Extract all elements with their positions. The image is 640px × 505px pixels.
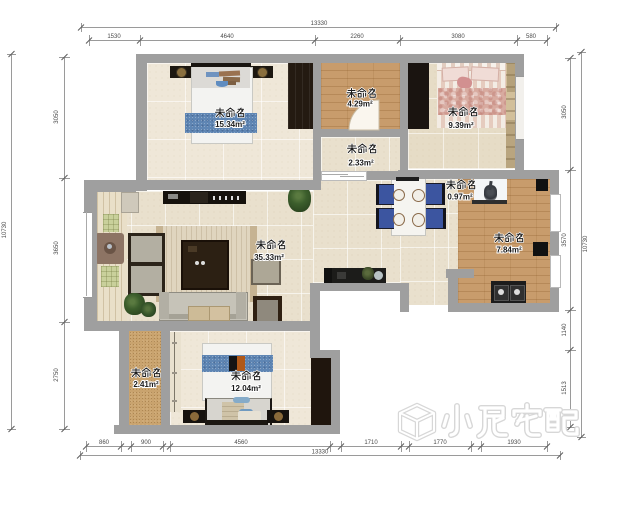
svg-text:35.33m²: 35.33m² [254,253,284,262]
svg-text:12.04m²: 12.04m² [231,384,261,393]
svg-text:9.39m²: 9.39m² [448,121,474,130]
svg-text:2.41m²: 2.41m² [133,380,159,389]
svg-text:2.33m²: 2.33m² [348,159,374,168]
svg-text:0.97m²: 0.97m² [447,193,473,202]
svg-text:4.29m²: 4.29m² [347,100,373,109]
svg-text:7.84m²: 7.84m² [496,246,522,255]
svg-text:15.34m²: 15.34m² [215,120,245,129]
